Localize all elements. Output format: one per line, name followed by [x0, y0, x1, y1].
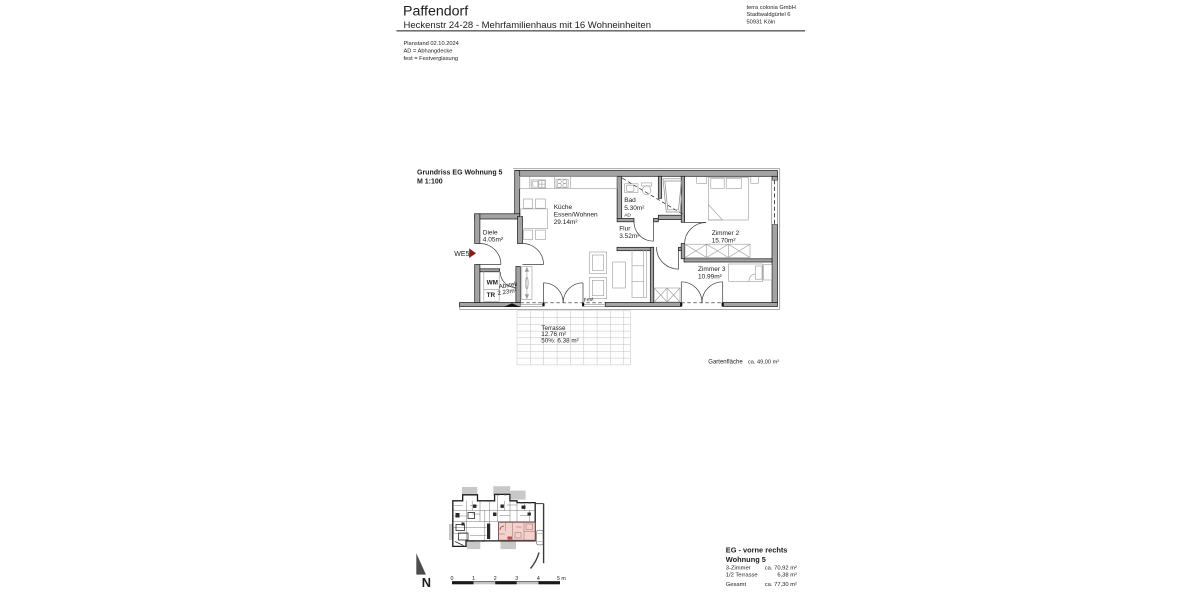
svg-text:15.70m²: 15.70m² — [712, 237, 737, 244]
svg-text:Grundriss EG Wohnung 5: Grundriss EG Wohnung 5 — [417, 170, 503, 177]
svg-text:Zimmer 2: Zimmer 2 — [712, 230, 740, 237]
svg-text:Küche: Küche — [554, 204, 573, 211]
svg-text:Gesamt: Gesamt — [726, 582, 747, 588]
svg-text:6,38 m²: 6,38 m² — [777, 573, 797, 579]
svg-text:1: 1 — [472, 576, 475, 582]
svg-text:AD: AD — [624, 212, 631, 218]
svg-text:Wohnung 5: Wohnung 5 — [726, 555, 766, 564]
svg-text:Essen/Wohnen: Essen/Wohnen — [554, 212, 598, 219]
svg-text:5.30m²: 5.30m² — [624, 205, 645, 212]
svg-text:0: 0 — [451, 576, 454, 582]
svg-text:Bad: Bad — [624, 197, 636, 204]
svg-text:3-Zimmer: 3-Zimmer — [726, 565, 751, 571]
svg-text:10.99m²: 10.99m² — [698, 274, 723, 281]
svg-text:29.14m²: 29.14m² — [554, 219, 579, 226]
svg-text:3: 3 — [515, 576, 518, 582]
svg-text:fest = Festverglasung: fest = Festverglasung — [404, 56, 459, 62]
svg-text:Flur: Flur — [619, 226, 631, 233]
svg-text:terra colonia GmbH: terra colonia GmbH — [747, 5, 796, 11]
svg-text:Planstand 02.10.2024: Planstand 02.10.2024 — [404, 41, 459, 47]
svg-text:Stadtwaldgürtel 6: Stadtwaldgürtel 6 — [747, 12, 791, 18]
svg-text:Heckenstr 24-28 - Mehrfamilien: Heckenstr 24-28 - Mehrfamilienhaus mit 1… — [404, 20, 651, 31]
svg-text:ca. 49,00 m²: ca. 49,00 m² — [748, 359, 779, 365]
svg-text:AD = Abhangdecke: AD = Abhangdecke — [404, 48, 453, 54]
svg-text:5 m: 5 m — [557, 576, 566, 582]
svg-text:4.05m²: 4.05m² — [483, 237, 504, 244]
svg-text:N: N — [422, 575, 431, 590]
svg-text:50931 Köln: 50931 Köln — [747, 20, 776, 26]
svg-text:TR: TR — [487, 292, 496, 299]
svg-text:WM: WM — [487, 280, 498, 287]
svg-text:50%: 6.38 m²: 50%: 6.38 m² — [541, 338, 578, 345]
svg-text:1/2 Terrasse: 1/2 Terrasse — [726, 573, 758, 579]
svg-text:Gartenfläche: Gartenfläche — [708, 359, 743, 365]
svg-text:ca. 77,30 m²: ca. 77,30 m² — [765, 582, 797, 588]
svg-text:Zimmer 3: Zimmer 3 — [698, 266, 726, 273]
svg-text:EG - vorne rechts: EG - vorne rechts — [726, 545, 788, 554]
svg-text:Diele: Diele — [483, 229, 498, 236]
svg-text:WE5: WE5 — [454, 251, 469, 258]
svg-text:Paffendorf: Paffendorf — [403, 3, 468, 19]
svg-text:ca. 70,92 m²: ca. 70,92 m² — [765, 565, 797, 571]
svg-text:3.52m²: 3.52m² — [619, 233, 640, 240]
svg-text:2: 2 — [494, 576, 497, 582]
svg-text:4: 4 — [537, 576, 540, 582]
svg-text:M 1:100: M 1:100 — [417, 179, 443, 186]
